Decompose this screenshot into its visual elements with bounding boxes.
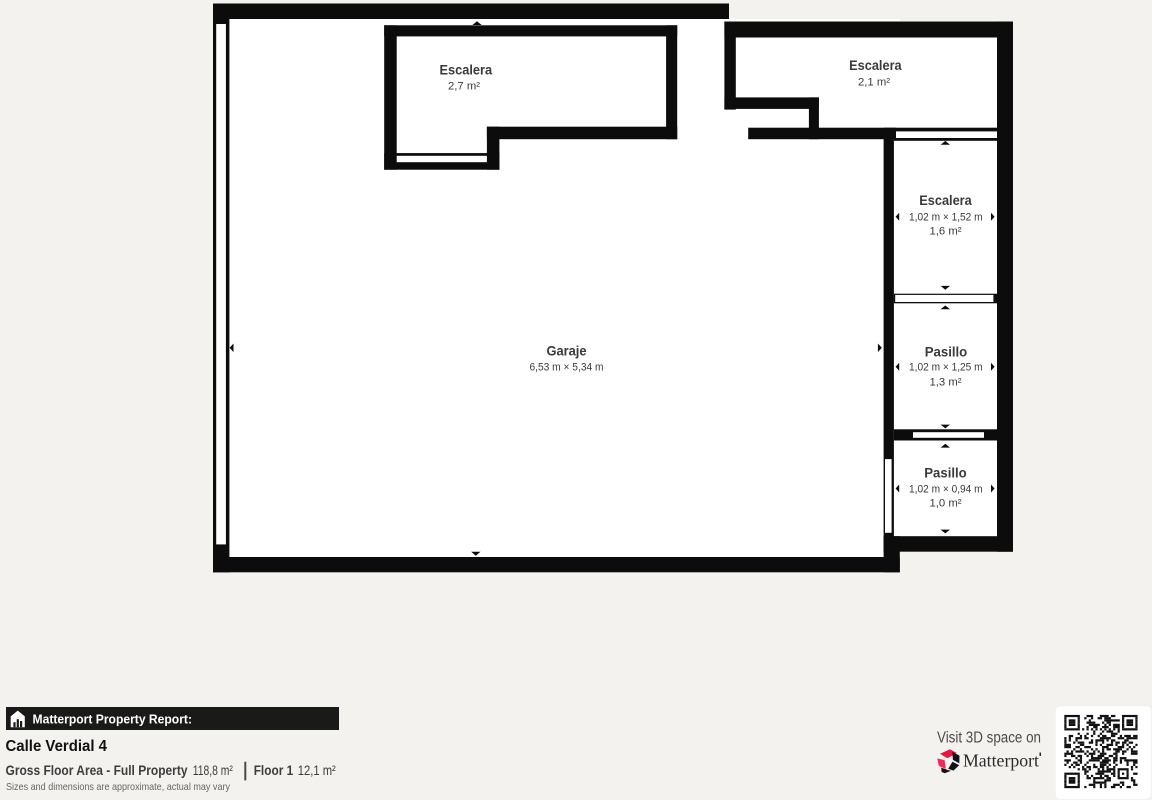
svg-text:2,1 m²: 2,1 m²	[858, 77, 890, 89]
svg-text:Floor 1: Floor 1	[254, 762, 294, 778]
svg-text:Calle Verdial 4: Calle Verdial 4	[6, 738, 108, 755]
svg-text:1,0 m²: 1,0 m²	[929, 497, 961, 509]
svg-text:118,8 m²: 118,8 m²	[193, 762, 233, 778]
svg-text:Escalera: Escalera	[440, 63, 493, 78]
svg-text:Matterport Property Report:: Matterport Property Report:	[33, 711, 193, 726]
svg-text:12,1 m²: 12,1 m²	[298, 762, 336, 778]
svg-text:6,53 m × 5,34 m: 6,53 m × 5,34 m	[530, 362, 604, 374]
svg-text:Pasillo: Pasillo	[924, 465, 967, 480]
svg-text:2,7 m²: 2,7 m²	[448, 80, 480, 92]
svg-text:1,02 m × 1,52 m: 1,02 m × 1,52 m	[909, 212, 983, 224]
svg-text:Sizes and dimensions are appro: Sizes and dimensions are approximate, ac…	[6, 781, 231, 793]
svg-text:Escalera: Escalera	[849, 58, 902, 73]
svg-text:Matterport: Matterport	[963, 750, 1039, 770]
svg-text:1,3 m²: 1,3 m²	[929, 376, 961, 388]
svg-text:Visit 3D space on: Visit 3D space on	[937, 730, 1041, 747]
svg-text:Pasillo: Pasillo	[925, 344, 968, 359]
svg-text:1,6 m²: 1,6 m²	[929, 225, 961, 237]
svg-text:Gross Floor Area - Full Proper: Gross Floor Area - Full Property	[6, 762, 188, 778]
svg-text:1,02 m × 0,94 m: 1,02 m × 0,94 m	[909, 483, 983, 495]
svg-text:Garaje: Garaje	[547, 344, 587, 359]
svg-text:1,02 m × 1,25 m: 1,02 m × 1,25 m	[909, 362, 983, 374]
svg-text:Escalera: Escalera	[919, 193, 972, 208]
